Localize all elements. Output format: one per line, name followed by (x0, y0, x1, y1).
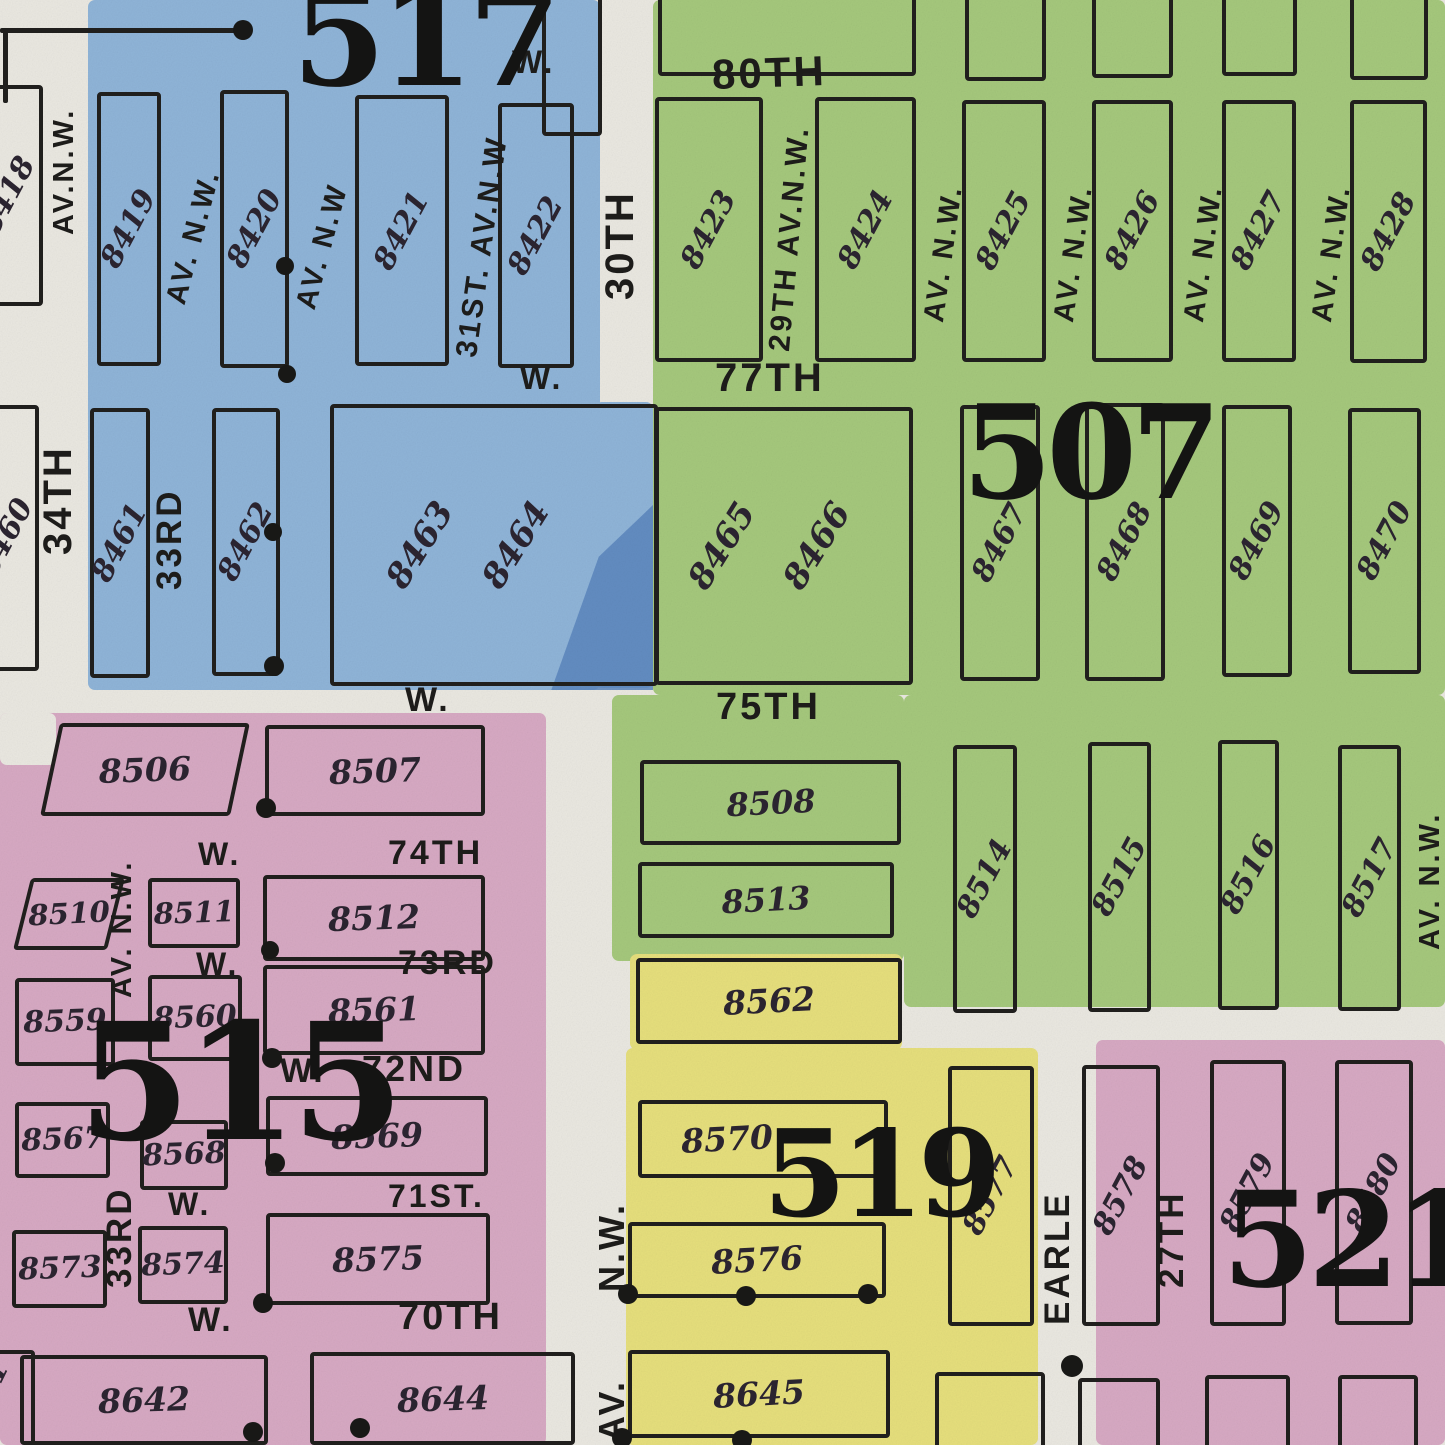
block-number: 8465 (682, 497, 761, 595)
street-label-av-n-w-: AV.N.W. (50, 108, 79, 235)
block-8506: 8506 (40, 723, 250, 816)
block-8461: 8461 (90, 408, 150, 678)
block-number: 8515 (1087, 833, 1153, 921)
block-8513: 8513 (638, 862, 894, 938)
block-number: 8462 (213, 498, 279, 586)
corner-dot (276, 257, 294, 275)
corner-dot (736, 1286, 756, 1306)
block-number: 8511 (153, 897, 235, 929)
block-number: 8510 (27, 898, 110, 931)
block-number: 8418 (0, 152, 40, 240)
block-8573: 8573 (12, 1230, 107, 1308)
street-label-73rd: 73RD (398, 946, 497, 980)
block-8516: 8516 (1218, 740, 1279, 1010)
block-number: 8422 (503, 192, 569, 280)
street-label-70th: 70TH (398, 1298, 503, 1336)
street-label-av-n-w-: AV. N.W. (108, 860, 137, 998)
district-number-517: 517 (292, 0, 556, 105)
block-number: 8508 (725, 784, 816, 821)
block-number: 8469 (1224, 497, 1290, 585)
partial-block (1078, 1378, 1160, 1445)
street-label-w-: W. (405, 683, 451, 717)
corner-dot (262, 1048, 282, 1068)
block-8420: 8420 (220, 90, 289, 368)
street-label-av-n-w-: AV. N.W. (1416, 812, 1445, 950)
district-number-521: 521 (1222, 1175, 1445, 1307)
corner-dot (618, 1284, 638, 1304)
block-number: 8463 (381, 496, 460, 594)
block-8418: 8418 (0, 85, 43, 306)
corner-dot (261, 941, 279, 959)
street-label-77th: 77TH (715, 358, 825, 398)
corner-dot (264, 656, 284, 676)
corner-dot (1061, 1355, 1083, 1377)
partial-block (1338, 1375, 1418, 1445)
block-number: 8426 (1100, 187, 1166, 275)
block-number: 8576 (710, 1241, 803, 1279)
survey-line (0, 28, 250, 33)
block-number: 8461 (87, 499, 153, 587)
block-8463-8464: 84638464 (330, 404, 658, 686)
partial-block (1205, 1375, 1290, 1445)
corner-dot (278, 365, 296, 383)
street-label-74th: 74TH (388, 836, 483, 870)
block-8469: 8469 (1222, 405, 1292, 677)
block-8578: 8578 (1082, 1065, 1160, 1326)
block-8426: 8426 (1092, 100, 1173, 362)
block-8423: 8423 (655, 97, 763, 362)
corner-dot (264, 523, 282, 541)
corner-dot (858, 1284, 878, 1304)
block-number: 8516 (1216, 831, 1282, 919)
street-label-n-w-: N.W. (594, 1202, 630, 1292)
block-8514: 8514 (953, 745, 1017, 1013)
corner-dot (253, 1293, 273, 1313)
block-number: 8513 (721, 882, 812, 919)
block-number: 8427 (1226, 187, 1292, 275)
corner-dot (243, 1422, 263, 1442)
street-label-earle: EARLE (1040, 1191, 1075, 1325)
street-label-w-: W. (198, 838, 241, 870)
street-label-75th: 75TH (716, 688, 821, 726)
block-number: 8641 (0, 1356, 14, 1444)
block-8574: 8574 (138, 1226, 228, 1304)
block-number: 8645 (712, 1375, 805, 1413)
partial-block (935, 1372, 1045, 1445)
block-8645: 8645 (628, 1350, 890, 1438)
block-number: 8419 (96, 185, 162, 273)
block-number: 8421 (369, 187, 435, 275)
plat-map-canvas: 8418841984208421842284608461846284638464… (0, 0, 1445, 1445)
block-8517: 8517 (1338, 745, 1401, 1011)
block-number: 8514 (952, 835, 1018, 923)
district-number-507: 507 (962, 388, 1215, 518)
block-8427: 8427 (1222, 100, 1296, 362)
block-number: 8466 (777, 497, 856, 595)
block-number: 8574 (141, 1249, 225, 1282)
block-8642: 8642 (20, 1355, 268, 1445)
partial-block (1222, 0, 1297, 76)
block-number: 8428 (1356, 188, 1422, 276)
street-label-80th: 80TH (711, 50, 827, 96)
block-number: 8423 (676, 186, 742, 274)
block-number: 8644 (396, 1380, 489, 1416)
block-8575: 8575 (266, 1213, 490, 1305)
street-label-w-: W. (520, 362, 563, 394)
block-8507: 8507 (265, 725, 485, 816)
street-label-34th: 34TH (38, 445, 78, 555)
block-8460: 8460 (0, 405, 39, 671)
street-label-30th: 30TH (600, 190, 640, 300)
corner-dot (350, 1418, 370, 1438)
block-8465-8466: 84658466 (655, 407, 913, 685)
block-number: 8460 (0, 494, 38, 582)
street-label-w-: W. (188, 1303, 234, 1337)
block-number: 8425 (971, 187, 1037, 275)
block-number: 8507 (329, 752, 422, 788)
block-8508: 8508 (640, 760, 901, 845)
partial-block (1092, 0, 1173, 78)
corner-dot (256, 798, 276, 818)
corner-dot (612, 1428, 632, 1445)
block-8470: 8470 (1348, 408, 1421, 674)
district-number-519: 519 (763, 1115, 996, 1235)
block-number: 8424 (833, 186, 899, 274)
district-number-515: 515 (78, 1002, 398, 1164)
district-wash-paper-6 (0, 713, 56, 765)
block-number: 8573 (17, 1253, 101, 1286)
corner-dot (265, 1153, 285, 1173)
block-number: 8562 (722, 982, 815, 1020)
street-label-w-: W. (168, 1188, 211, 1220)
block-number: 8578 (1088, 1152, 1154, 1240)
block-8425: 8425 (962, 100, 1046, 362)
block-8641: 8641 (0, 1350, 35, 1445)
street-label-w-: W. (196, 948, 239, 980)
block-8424: 8424 (815, 97, 916, 362)
street-label-71st-: 71ST. (388, 1180, 485, 1212)
street-label-27th: 27TH (1154, 1190, 1189, 1288)
block-number: 8642 (98, 1382, 191, 1418)
block-8419: 8419 (97, 92, 161, 366)
block-8511: 8511 (148, 878, 240, 948)
block-number: 8570 (680, 1120, 773, 1158)
partial-block (1350, 0, 1428, 80)
block-number: 8506 (98, 752, 192, 788)
block-number: 8575 (332, 1241, 425, 1277)
street-label-33rd: 33RD (102, 1187, 137, 1288)
partial-block (965, 0, 1046, 81)
corner-dot (732, 1430, 752, 1445)
block-number: 8512 (328, 900, 421, 936)
corner-dot (233, 20, 253, 40)
block-number: 8464 (477, 496, 556, 594)
block-8428: 8428 (1350, 100, 1427, 363)
block-number: 8470 (1352, 497, 1418, 585)
block-number: 8517 (1337, 834, 1403, 922)
block-8562: 8562 (636, 958, 902, 1044)
street-label-33rd: 33RD (152, 489, 187, 590)
block-8462: 8462 (212, 408, 280, 676)
block-8515: 8515 (1088, 742, 1151, 1012)
block-8421: 8421 (355, 95, 449, 366)
